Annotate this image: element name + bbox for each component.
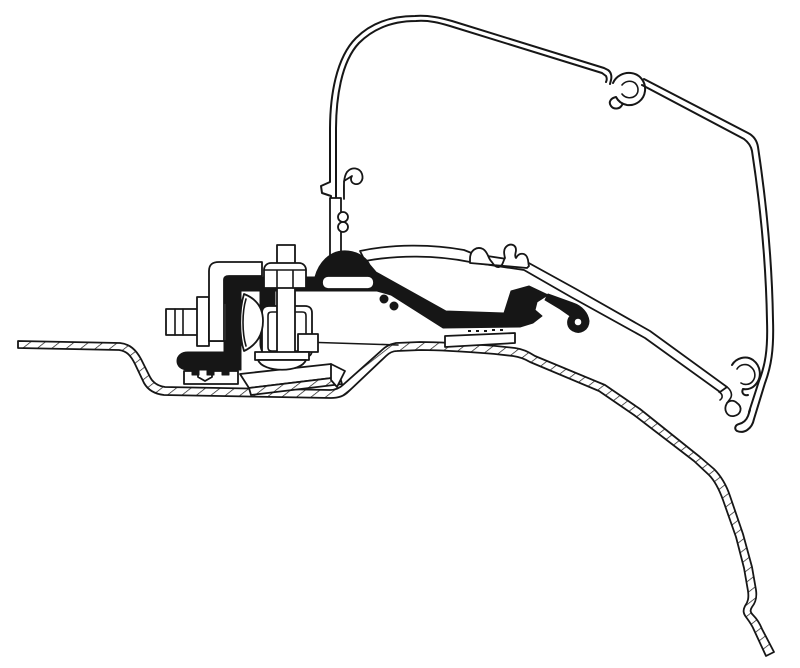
- awning-lower-arm: [360, 245, 741, 417]
- rail-curl-slot: [322, 276, 374, 289]
- arm-band: [360, 246, 727, 392]
- rail-top-hook: [344, 168, 363, 199]
- arm-end-nub: [719, 392, 722, 400]
- rail-bump-lower: [338, 222, 348, 232]
- vertical-bolt-shaft: [277, 245, 295, 353]
- base-plate-tab: [331, 364, 345, 387]
- case-bottom-hook-inner: [737, 365, 755, 385]
- adapter-tooth-1: [380, 295, 388, 303]
- contact-plate-marks: [468, 329, 503, 332]
- adapter-tooth-2: [390, 302, 398, 310]
- case-top-hook-inner: [622, 81, 638, 97]
- case-outline-inner: [336, 21, 607, 200]
- contact-plate: [445, 329, 515, 347]
- bolt-washer: [255, 352, 309, 360]
- flange-washer: [197, 297, 209, 346]
- arm-end-hook: [725, 401, 740, 416]
- hook-opening: [574, 318, 582, 326]
- roof-sheet: [18, 341, 774, 656]
- horizontal-bolt-head: [166, 309, 198, 335]
- contact-plate-face: [445, 333, 515, 347]
- van-roof-panel: [18, 341, 774, 656]
- hex-nut: [264, 263, 306, 288]
- claw-step-block: [298, 334, 318, 352]
- case-top-hook-outer: [610, 73, 645, 109]
- case-outline-outer: [321, 16, 611, 203]
- technical-drawing-page: Technical cross-section drawing of an aw…: [0, 0, 800, 668]
- rail-bump-upper: [338, 212, 348, 222]
- mounting-bracket-hardware: [166, 245, 318, 370]
- technical-diagram: Technical cross-section drawing of an aw…: [0, 0, 800, 668]
